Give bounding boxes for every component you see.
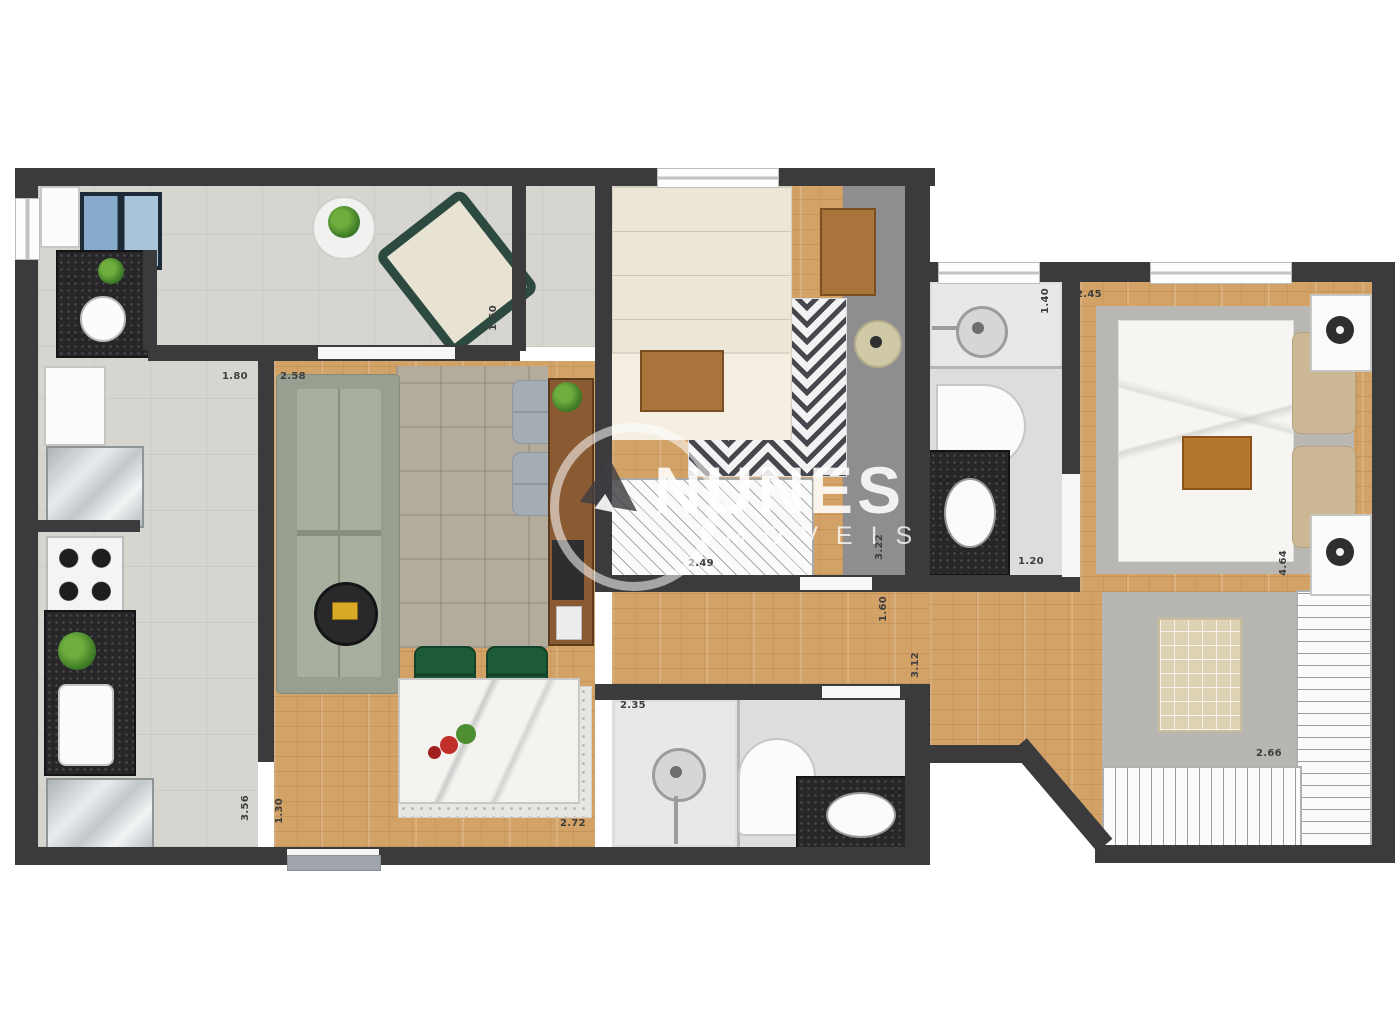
bedroom2-bench: [640, 350, 724, 412]
dim-kitchen-top: 1.80: [222, 371, 248, 382]
dim-master-width: 2.45: [1076, 289, 1102, 300]
service-cabinet: [40, 186, 80, 248]
laundry-sink: [80, 296, 126, 342]
wall-kitchen-stub: [38, 520, 140, 532]
floor-plan: 1.80 2.58 1.50 2.49 3.22 1.60 3.12 1.40 …: [0, 0, 1400, 1021]
wall-under-suite-bath: [905, 575, 1080, 592]
kitchen-lower-counter: [46, 778, 154, 852]
dim-hall-width: 1.60: [878, 596, 889, 622]
dim-hall-length: 3.12: [910, 652, 921, 678]
bedroom2-door-opening: [800, 577, 872, 590]
dim-suite-bath-width: 1.40: [1040, 288, 1051, 314]
social-sink: [826, 792, 896, 838]
wall-nook-stub: [512, 184, 526, 351]
suite-bath-door-opening: [1062, 474, 1080, 577]
table-flowers-green: [456, 724, 476, 744]
social-shower-head: [670, 766, 682, 778]
side-table-tray: [332, 602, 358, 620]
wall-chamfer-stub: [925, 745, 1025, 763]
console-item: [556, 606, 582, 640]
wall-kitchen-living: [258, 352, 274, 762]
chevron-strip: [807, 299, 846, 476]
closet-wardrobe-right: [1296, 590, 1372, 847]
wall-social-bath-right: [905, 684, 930, 863]
closet-wardrobe-bottom: [1102, 766, 1302, 847]
dim-nook-depth: 1.50: [488, 305, 499, 331]
watermark-brand: NUNES: [654, 452, 905, 528]
wall-bottom-mid: [595, 847, 930, 865]
sofa: [276, 374, 400, 694]
watermark-subtext: IMÓVEIS: [700, 522, 930, 551]
social-bath-door-opening: [822, 686, 900, 698]
suite-bath-window: [938, 262, 1040, 284]
nook-plant: [328, 206, 360, 238]
dim-living-top: 2.58: [280, 371, 306, 382]
dim-kitchen-length: 3.56: [240, 795, 251, 821]
living-passage-opening: [318, 347, 455, 359]
console-plant: [552, 382, 582, 412]
kitchen-sink: [58, 684, 114, 766]
dim-entry-width: 1.30: [274, 798, 285, 824]
kitchen-plant: [58, 632, 96, 670]
wall-laundry-side: [143, 250, 157, 350]
suite-sink: [944, 478, 996, 548]
dim-social-bath-width: 2.35: [620, 700, 646, 711]
laundry-window: [15, 198, 40, 260]
wall-left: [15, 168, 38, 865]
table-flowers-red2: [428, 746, 441, 759]
dim-master-length: 4.64: [1278, 550, 1289, 576]
table-flowers-red: [440, 736, 458, 754]
dining-table: [398, 678, 580, 804]
wall-top-left: [15, 168, 935, 186]
master-lamp-bottom: [1326, 538, 1354, 566]
dim-closet-width: 2.66: [1256, 748, 1282, 759]
breakfast-tray: [1182, 436, 1252, 490]
master-window: [1150, 262, 1292, 284]
wardrobe-mirror-knob: [870, 336, 882, 348]
suite-shower-arm: [932, 326, 958, 330]
wall-right: [1372, 262, 1395, 863]
suite-shower-head: [972, 322, 984, 334]
bedroom2-nightstand: [820, 208, 876, 296]
kitchen-appliance: [44, 366, 106, 446]
bedroom2-window: [657, 168, 779, 188]
closet-ottoman: [1158, 618, 1242, 732]
wall-suite-bath-right: [1062, 282, 1080, 474]
master-lamp-top: [1326, 316, 1354, 344]
dim-dining-width: 2.72: [560, 818, 586, 829]
dim-suite-bath-bottom: 1.20: [1018, 556, 1044, 567]
cooktop: [46, 536, 124, 612]
social-shower-stem: [674, 796, 678, 844]
suite-bath-divider: [930, 366, 1062, 369]
fridge: [46, 446, 144, 528]
laundry-plant: [98, 258, 124, 284]
wall-bottom-right: [1095, 845, 1395, 863]
entrance-doormat: [287, 855, 381, 871]
